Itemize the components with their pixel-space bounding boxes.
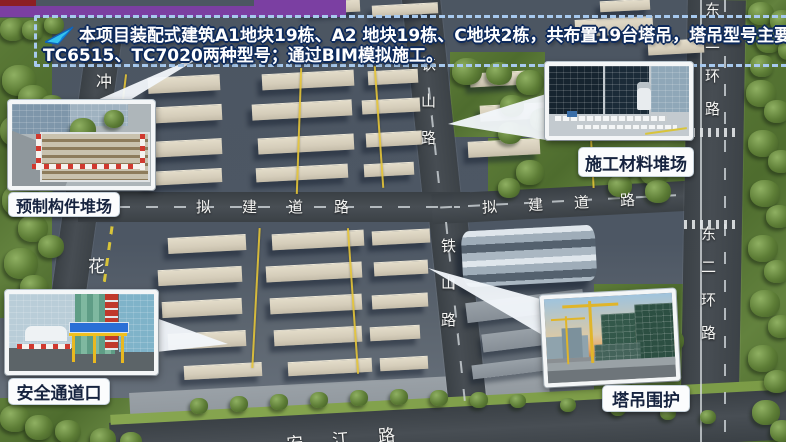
tree <box>768 315 786 338</box>
road-label-chong: 冲 <box>96 68 112 92</box>
building <box>266 261 363 282</box>
tree <box>750 180 780 207</box>
tree <box>748 235 778 262</box>
tree <box>700 410 716 424</box>
photo-material-yard <box>545 62 693 140</box>
tree <box>764 260 786 283</box>
road-label-tieshan-top: 铁山路 <box>418 56 439 167</box>
tree <box>748 345 778 372</box>
building <box>274 326 363 347</box>
crane-line <box>251 228 260 368</box>
building <box>288 358 373 376</box>
tree <box>500 95 524 117</box>
tree <box>4 248 38 279</box>
tree <box>390 389 408 405</box>
building <box>256 164 349 183</box>
building <box>262 70 355 91</box>
building <box>372 293 429 310</box>
building <box>158 266 243 286</box>
building <box>168 234 247 254</box>
building <box>370 325 421 342</box>
road-label-tieshan-bottom: 铁山路 <box>438 238 459 349</box>
building <box>366 131 423 148</box>
tree <box>190 398 208 414</box>
tree <box>764 370 786 393</box>
tree <box>38 235 64 258</box>
photo-safety-gate <box>5 290 158 375</box>
banner-box: 本项目装配式建筑A1地块19栋、A2 地块19栋、C地块2栋，共布置19台塔吊，… <box>34 15 786 67</box>
building <box>148 74 221 94</box>
building <box>168 330 247 350</box>
tree <box>270 394 288 410</box>
building <box>146 168 223 186</box>
tree <box>90 428 116 442</box>
building <box>380 356 429 371</box>
top-purple-bar-small <box>254 0 346 6</box>
photo-precast-yard <box>8 100 155 190</box>
tree <box>764 100 786 123</box>
road-label-hua: 花 <box>88 252 105 277</box>
tree <box>55 420 81 442</box>
tree <box>430 390 448 406</box>
building <box>162 298 243 318</box>
building <box>258 133 355 154</box>
tree <box>498 122 522 144</box>
tree <box>230 396 248 412</box>
label-precast-yard: 预制构件堆场 <box>8 192 120 217</box>
tree <box>516 70 544 95</box>
label-crane-enclosure: 塔吊围护 <box>602 385 690 412</box>
slide-construction-site-plan: 铁山路 铁山路 拟建道路 拟建道路 东二环路 东二环路 冲 花 安江路 本项目装… <box>0 0 786 442</box>
tree <box>310 392 328 408</box>
building <box>252 99 353 120</box>
building <box>374 260 429 277</box>
tree <box>350 390 368 406</box>
tree <box>120 432 142 442</box>
tree <box>766 205 786 228</box>
tree <box>25 415 53 440</box>
tree <box>750 290 780 317</box>
curved-roof-building <box>461 225 598 288</box>
building <box>600 0 651 12</box>
tree <box>510 394 526 408</box>
building <box>372 228 431 245</box>
road-label-donghuan-bottom: 东二环路 <box>698 226 719 358</box>
tree <box>560 398 576 412</box>
building <box>272 230 365 251</box>
label-safety-gate: 安全通道口 <box>8 378 110 405</box>
tree <box>470 392 488 408</box>
building <box>362 97 421 114</box>
building <box>364 162 415 178</box>
tree <box>768 150 786 173</box>
building <box>270 294 363 315</box>
banner-text-line2: TC6515、TC7020两种型号；通过BIM模拟施工。 <box>43 41 443 66</box>
tree <box>770 420 786 442</box>
road-label-nijian-left: 拟建道路 <box>196 196 380 217</box>
tree <box>516 160 544 185</box>
building <box>148 138 223 158</box>
photo-crane-enclosure <box>540 289 681 388</box>
label-material-yard: 施工材料堆场 <box>578 147 694 177</box>
